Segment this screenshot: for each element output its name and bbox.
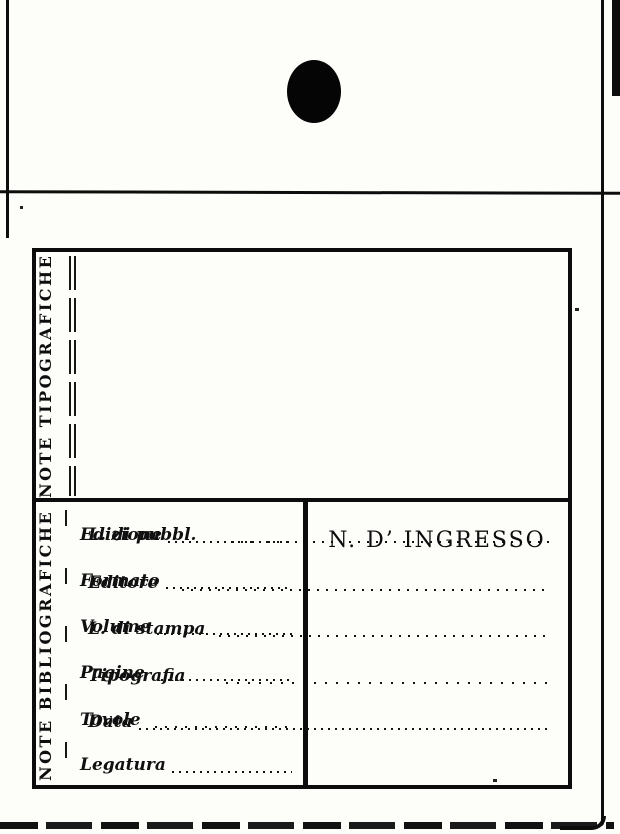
scan-speck xyxy=(575,308,579,311)
card-right-edge-line xyxy=(601,0,604,826)
bibliographic-form-box: NOTE TIPOGRAFICHE L. di pubbl. Editore L… xyxy=(32,248,572,789)
section-rule xyxy=(65,510,67,782)
numero-ingresso-label: N. D’ INGRESSO xyxy=(308,528,566,553)
field-row-edizione: Edizione xyxy=(80,525,292,547)
field-row-tavole: Tavole xyxy=(80,710,292,732)
field-label: Volume xyxy=(80,617,151,637)
card-bottom-edge-line xyxy=(0,822,614,829)
section-rule xyxy=(69,256,71,496)
dotted-fill-line xyxy=(157,633,292,635)
dotted-fill-line xyxy=(168,541,292,543)
dotted-fill-line xyxy=(172,771,292,773)
scan-edge-artifact xyxy=(612,0,620,96)
scan-speck xyxy=(493,779,497,782)
field-row-legatura: Legatura xyxy=(80,755,292,777)
section-divider xyxy=(32,498,572,502)
scan-speck xyxy=(20,206,23,209)
field-row-pagine: Pagine xyxy=(80,663,292,685)
card-bottom-right-corner xyxy=(560,816,606,830)
dotted-fill-line xyxy=(155,726,292,728)
punch-hole-icon xyxy=(287,60,341,123)
card-left-edge-line xyxy=(6,0,9,238)
field-label: Legatura xyxy=(80,755,166,775)
catalog-card-scan: NOTE TIPOGRAFICHE L. di pubbl. Editore L… xyxy=(0,0,620,834)
field-row-formato: Formato xyxy=(80,571,292,593)
dotted-fill-line xyxy=(161,679,292,681)
field-label: Edizione xyxy=(80,525,162,545)
field-row-volume: Volume xyxy=(80,617,292,639)
card-fold-line xyxy=(0,190,620,195)
field-label: Pagine xyxy=(80,663,145,683)
section-label-note-tipografiche: NOTE TIPOGRAFICHE xyxy=(36,254,64,498)
field-label: Tavole xyxy=(80,710,141,730)
field-label: Formato xyxy=(80,571,160,591)
section-label-note-bibliografiche: NOTE BIBLIOGRAFICHE xyxy=(36,506,64,785)
dotted-fill-line xyxy=(166,587,292,589)
section-rule xyxy=(74,256,76,496)
